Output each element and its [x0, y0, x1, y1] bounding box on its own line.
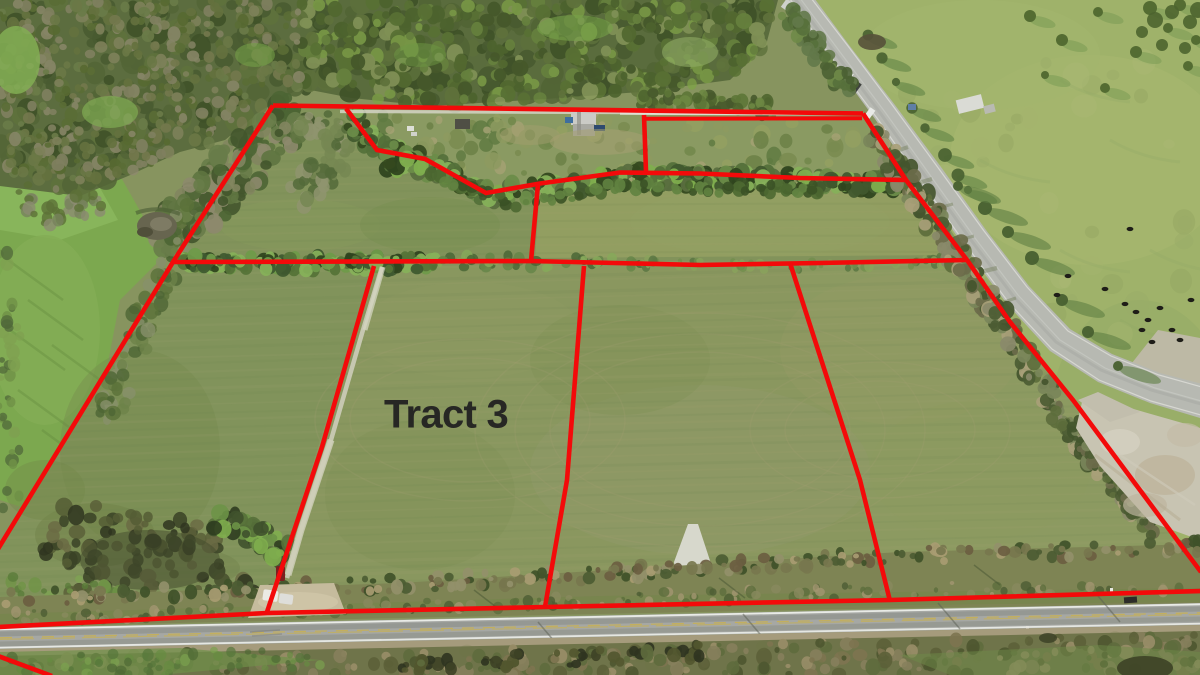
- svg-text:Tract 3: Tract 3: [384, 393, 508, 437]
